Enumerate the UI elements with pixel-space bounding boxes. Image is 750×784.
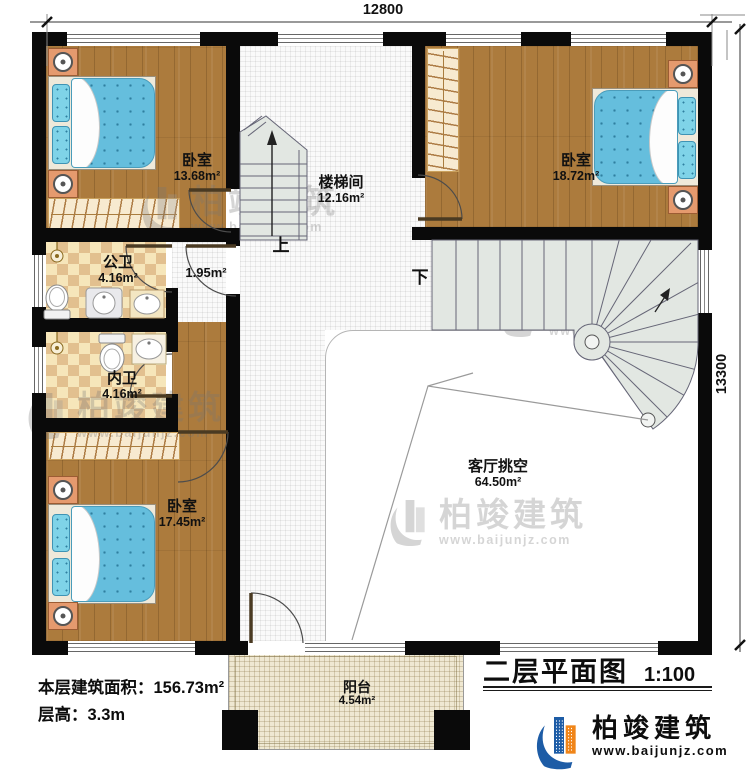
label-hallway: 1.95m² [185,266,226,281]
floor-height-text: 层高：3.3m [38,701,125,725]
label-stair-hall: 楼梯间 12.16m² [318,174,365,206]
plan-title-row: 二层平面图 1:100 [483,650,695,689]
doors [126,175,462,643]
void-edge-lines [352,373,648,640]
label-stairs-down: 下 [412,263,429,288]
label-living-void: 客厅挑空 64.50m² [468,458,528,490]
dimension-right: 13300 [714,354,730,394]
label-private-bath: 内卫 4.16m² [102,370,142,402]
label-stairs-up: 上 [273,231,290,256]
floor-area-text: 本层建筑面积：156.73m² [38,674,224,698]
plan-title: 二层平面图 [483,650,628,689]
brand-name: 柏竣建筑 [592,714,728,743]
label-public-bath: 公卫 4.16m² [98,254,138,286]
label-balcony: 阳台 4.54m² [339,679,375,708]
curved-stair [432,202,732,457]
title-underline [483,690,712,691]
title-underline [483,686,712,688]
label-bedroom-top-left: 卧室 13.68m² [174,152,221,184]
plan-scale: 1:100 [644,664,695,687]
label-bedroom-top-right: 卧室 18.72m² [553,152,600,184]
straight-stair [240,116,307,240]
dimension-top: 12800 [363,2,403,18]
label-bedroom-bottom-left: 卧室 17.45m² [159,498,206,530]
brand-logo-icon [534,714,584,770]
brand-url: www.baijunjz.com [592,743,728,758]
floor-plan-page: 柏竣建筑 www.baijunjz.com 柏竣建筑 www.baijunjz.… [0,0,750,784]
brand-block: 柏竣建筑 www.baijunjz.com [534,714,728,770]
